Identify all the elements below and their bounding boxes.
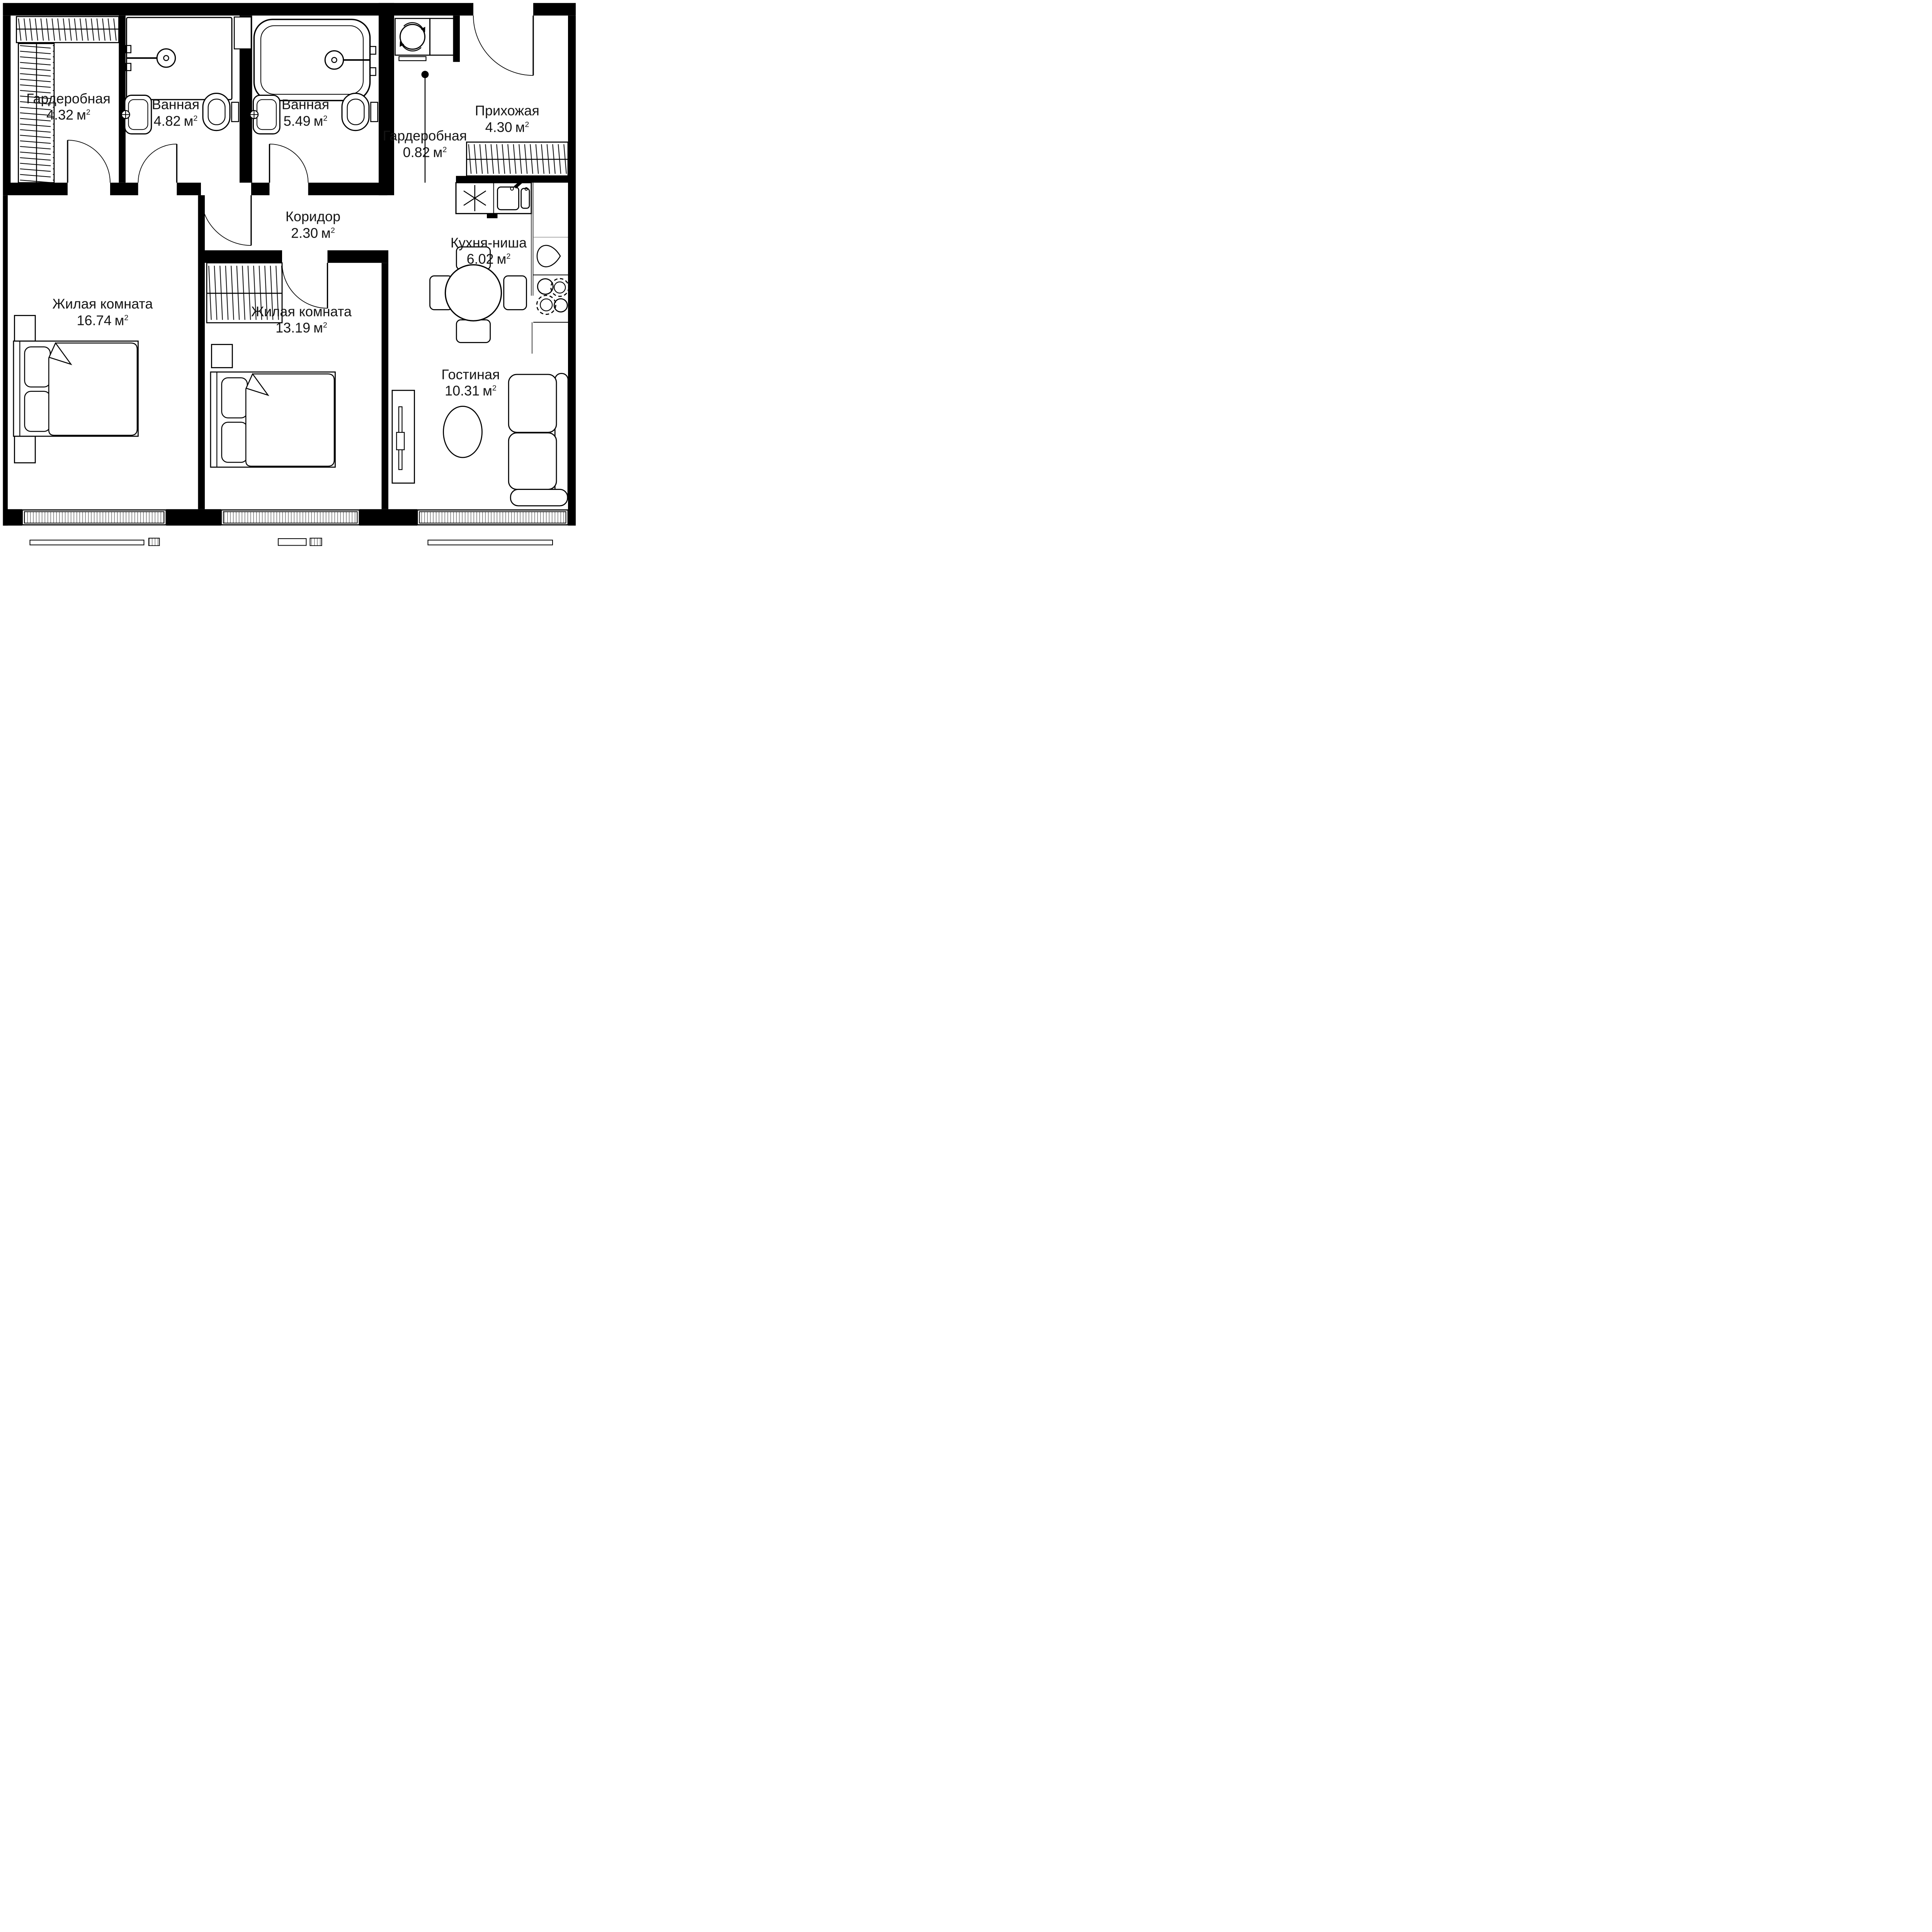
room-area: 5.49м2	[282, 113, 329, 129]
room-area: 13.19м2	[251, 320, 352, 336]
room-label-lounge: Гостиная 10.31м2	[441, 366, 500, 399]
room-area: 10.31м2	[441, 383, 500, 399]
room-name: Жилая комната	[251, 304, 352, 320]
room-area: 4.32м2	[26, 107, 111, 123]
room-name: Кухня-ниша	[451, 235, 527, 251]
room-area: 4.82м2	[152, 113, 199, 129]
room-area: 4.30м2	[475, 119, 539, 135]
room-name: Гардеробная	[383, 128, 467, 144]
room-label-living-2: Жилая комната 13.19м2	[251, 304, 352, 337]
room-label-hallway: Прихожая 4.30м2	[475, 103, 539, 136]
room-labels: Гардеробная 4.32м2 Ванная 4.82м2 Ванная …	[0, 0, 580, 546]
room-label-bathroom-1: Ванная 4.82м2	[152, 97, 199, 129]
room-area: 2.30м2	[286, 225, 340, 241]
room-label-kitchen-niche: Кухня-ниша 6.02м2	[451, 235, 527, 268]
room-name: Гардеробная	[26, 90, 111, 107]
floor-plan: Гардеробная 4.32м2 Ванная 4.82м2 Ванная …	[0, 0, 580, 546]
room-area: 0.82м2	[383, 144, 467, 160]
room-label-wardrobe-2: Гардеробная 0.82м2	[383, 128, 467, 161]
room-label-bathroom-2: Ванная 5.49м2	[282, 97, 329, 129]
room-name: Жилая комната	[52, 296, 153, 312]
room-area: 6.02м2	[451, 251, 527, 267]
room-name: Ванная	[152, 97, 199, 113]
room-name: Гостиная	[441, 366, 500, 383]
room-label-wardrobe-1: Гардеробная 4.32м2	[26, 90, 111, 123]
room-name: Прихожая	[475, 103, 539, 119]
room-label-living-1: Жилая комната 16.74м2	[52, 296, 153, 329]
room-label-corridor: Коридор 2.30м2	[286, 209, 340, 241]
room-name: Ванная	[282, 97, 329, 113]
room-name: Коридор	[286, 209, 340, 225]
room-area: 16.74м2	[52, 312, 153, 328]
